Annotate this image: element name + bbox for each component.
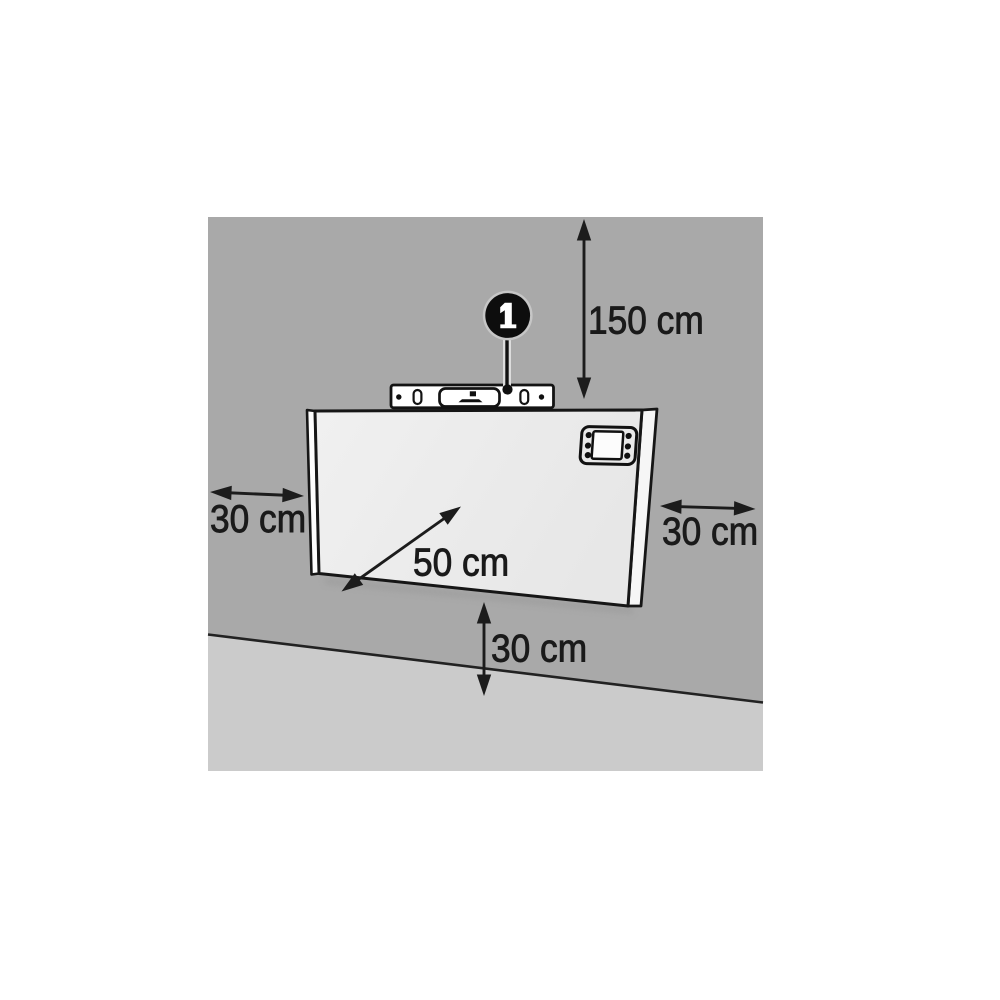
svg-text:30 cm: 30 cm (210, 496, 306, 540)
svg-text:150 cm: 150 cm (588, 298, 704, 342)
svg-text:50 cm: 50 cm (413, 540, 509, 584)
svg-text:30 cm: 30 cm (662, 509, 758, 553)
svg-text:30 cm: 30 cm (491, 626, 587, 670)
